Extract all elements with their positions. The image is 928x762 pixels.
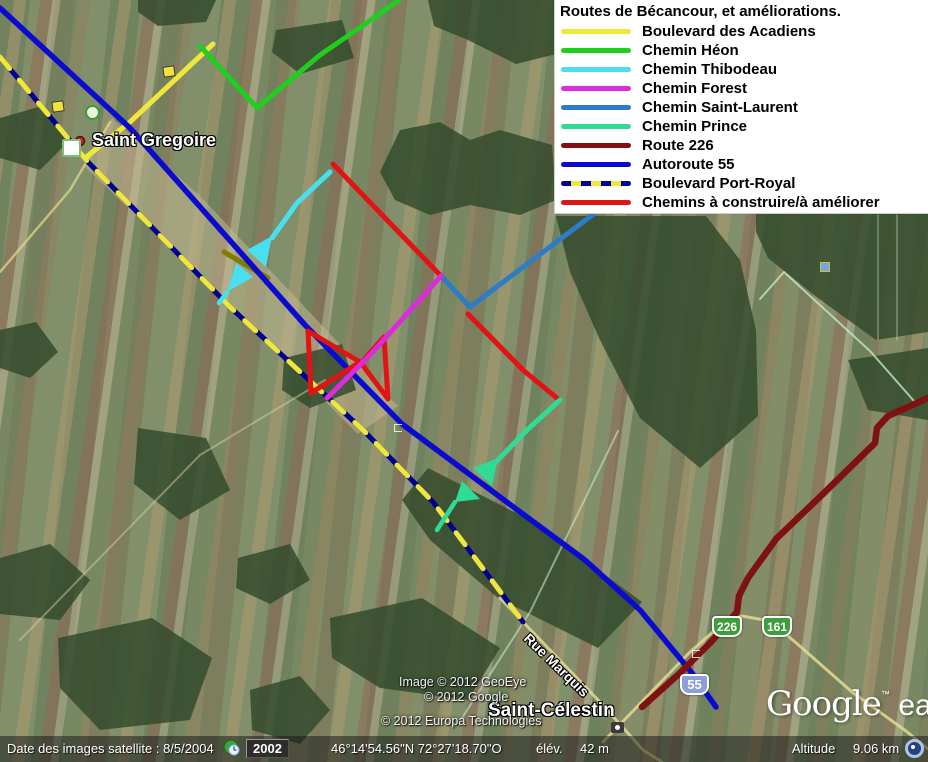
road-tick-icon (394, 424, 402, 432)
legend-item-label: Boulevard des Acadiens (642, 23, 816, 40)
legend-swatch (561, 105, 631, 110)
legend-item-label: Autoroute 55 (642, 156, 735, 173)
route-thibodeau (272, 172, 330, 238)
legend-swatch (561, 143, 631, 148)
legend-item: Chemin Héon (555, 41, 928, 60)
legend-item-label: Boulevard Port-Royal (642, 175, 795, 192)
legend-swatch (561, 124, 631, 129)
shield-label: 55 (687, 677, 701, 692)
pointer-coordinates: 46°14'54.56"N 72°27'18.70"O (331, 741, 502, 756)
road-tick-icon (692, 650, 700, 658)
route-forest (327, 276, 441, 398)
legend-swatch (561, 48, 631, 53)
lodging-poi-icon[interactable] (62, 139, 81, 157)
altitude-label: Altitude (792, 741, 835, 756)
legend-item-label: Route 226 (642, 137, 714, 154)
legend-item-label: Chemin Saint-Laurent (642, 99, 798, 116)
altitude-value: 9.06 km (853, 741, 899, 756)
logo-google-text: Google (766, 684, 881, 724)
legend-item-label: Chemins à construire/à améliorer (642, 194, 880, 211)
photo-poi-icon[interactable] (820, 262, 830, 272)
google-earth-logo: Google™ earth (766, 684, 928, 724)
legend-item: Boulevard Port-Royal (555, 174, 928, 193)
google-earth-window: Saint Gregoire Saint-Célestin Rue Marqui… (0, 0, 928, 762)
legend-item: Chemin Forest (555, 79, 928, 98)
legend-panel: Routes de Bécancour, et améliorations. B… (554, 0, 928, 214)
legend-swatch (561, 29, 631, 34)
elevation-label: élév. (536, 741, 563, 756)
legend-swatch-port-royal (561, 181, 631, 186)
legend-item: Boulevard des Acadiens (555, 22, 928, 41)
legend-item: Chemins à construire/à améliorer (555, 193, 928, 212)
elevation-value: 42 m (580, 741, 609, 756)
legend-swatch (561, 86, 631, 91)
shield-route-226: 226 (712, 616, 742, 637)
legend-item-label: Chemin Forest (642, 80, 747, 97)
route-construire-lower (468, 314, 558, 399)
legend-item: Chemin Saint-Laurent (555, 98, 928, 117)
shield-autoroute-55: 55 (680, 674, 709, 695)
legend-swatch (561, 200, 631, 205)
town-poi-icon[interactable] (611, 722, 624, 733)
legend-item: Route 226 (555, 136, 928, 155)
logo-earth-text: earth (898, 689, 928, 722)
imagery-date-label: Date des images satellite : 8/5/2004 (7, 741, 214, 756)
logo-tm: ™ (881, 689, 890, 699)
shield-label: 226 (717, 620, 737, 634)
flag-icon[interactable] (51, 100, 64, 113)
legend-item-label: Chemin Héon (642, 42, 739, 59)
legend-item: Autoroute 55 (555, 155, 928, 174)
legend-swatch (561, 162, 631, 167)
legend-item-label: Chemin Prince (642, 118, 747, 135)
flag-icon[interactable] (162, 65, 175, 78)
status-bar: Date des images satellite : 8/5/2004 200… (0, 736, 928, 762)
place-label-saint-gregoire: Saint Gregoire (92, 130, 216, 151)
route-prince (494, 400, 560, 464)
legend-item: Chemin Prince (555, 117, 928, 136)
attribution-google: © 2012 Google (424, 690, 508, 704)
shield-label: 161 (767, 620, 787, 634)
legend-item-label: Chemin Thibodeau (642, 61, 777, 78)
attribution-geoeye: Image © 2012 GeoEye (399, 675, 526, 689)
shield-route-161: 161 (762, 616, 792, 637)
year-badge[interactable]: 2002 (246, 739, 289, 758)
legend-item: Chemin Thibodeau (555, 60, 928, 79)
wreath-poi-icon[interactable] (85, 105, 100, 120)
streetview-pegman-icon[interactable] (905, 739, 924, 758)
legend-swatch (561, 67, 631, 72)
attribution-europa: © 2012 Europa Technologies (381, 714, 542, 728)
time-slider-icon[interactable] (223, 739, 241, 757)
legend-title: Routes de Bécancour, et améliorations. (560, 3, 928, 20)
